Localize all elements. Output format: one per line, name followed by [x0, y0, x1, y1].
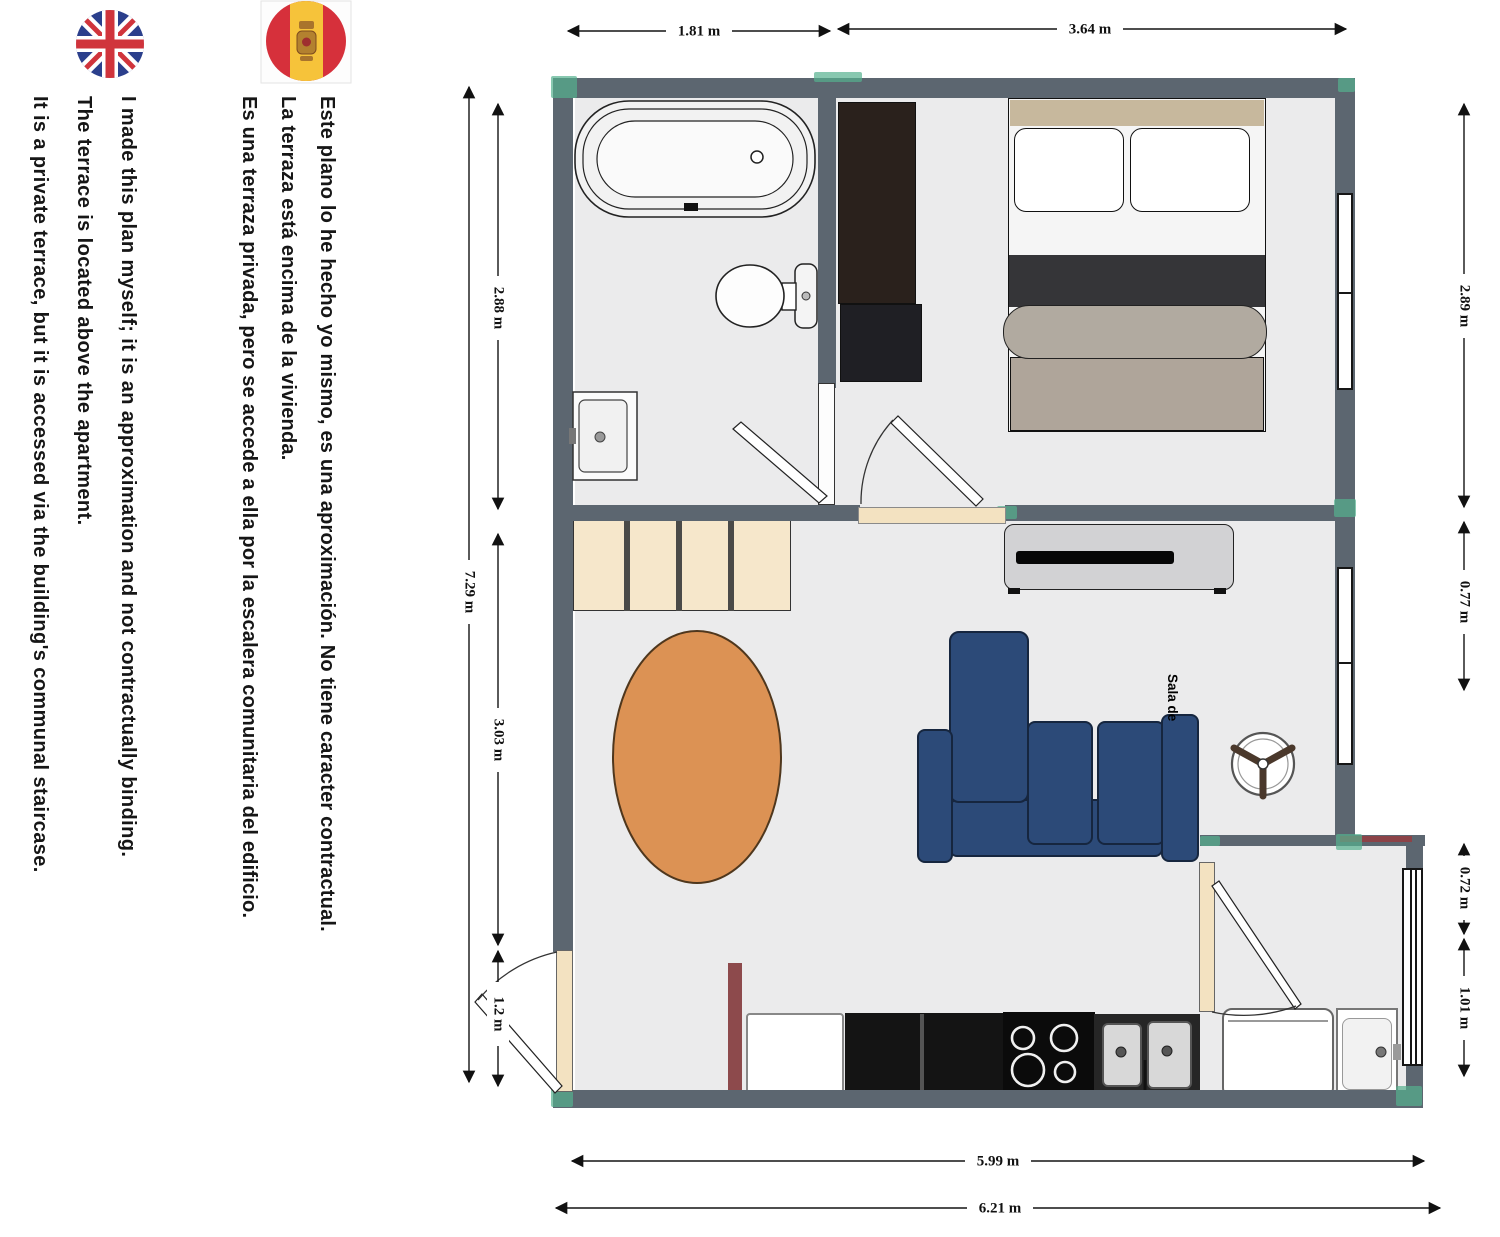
notes-english: I made this plan myself; it is an approx… [14, 96, 150, 1226]
teal-accent [1396, 1086, 1422, 1106]
pillow-right [1130, 128, 1250, 212]
stair-divider [676, 520, 682, 611]
dim-left-2: 3.03 m [491, 719, 507, 762]
spain-flag-icon [260, 0, 352, 84]
wall-top [553, 78, 1355, 98]
bedroom-door-threshold [858, 507, 1006, 524]
dim-top-2: 3.64 m [1069, 21, 1112, 37]
dim-left-1: 2.88 m [491, 287, 507, 330]
dim-right-4: 1.01 m [1457, 987, 1473, 1030]
annex-sink-basin [1342, 1018, 1392, 1090]
bed-bolster [1003, 305, 1267, 359]
dim-bottom-1: 5.99 m [977, 1153, 1020, 1169]
bed-blanket [1010, 357, 1264, 431]
dim-right-3: 0.72 m [1457, 867, 1473, 910]
wall-bottom [553, 1090, 1423, 1108]
kitchen-counter [845, 1013, 1003, 1096]
annex-window [1402, 868, 1423, 1066]
teal-accent [1338, 78, 1355, 92]
sofa-cushion [1027, 721, 1093, 845]
washing-machine-lid-line [1228, 1020, 1328, 1022]
floor-plan-page: I made this plan myself; it is an approx… [0, 0, 1500, 1237]
kitchen-appliance [746, 1013, 844, 1097]
stair-divider [728, 520, 734, 611]
tv-screen [1016, 551, 1174, 564]
dim-bottom-2: 6.21 m [979, 1200, 1022, 1216]
dim-left-3: 1.2 m [491, 997, 507, 1033]
bed-dark-blanket [1009, 255, 1265, 307]
stove [1003, 1012, 1095, 1097]
dim-top-1: 1.81 m [678, 23, 721, 39]
bedroom-window [1337, 193, 1353, 390]
note-es-2: La terraza está encima de la vivienda. [268, 96, 307, 1221]
teal-accent [1334, 499, 1356, 517]
annex-door-panel [1199, 862, 1215, 1012]
cabinet-foot [1214, 588, 1226, 594]
wall-bathroom-divider [818, 98, 836, 388]
counter-divider [920, 1014, 924, 1095]
wall-mid-left [553, 505, 860, 521]
uk-flag-icon [74, 5, 146, 79]
bathroom-door-panel [818, 383, 835, 505]
note-en-1: I made this plan myself; it is an approx… [106, 96, 150, 1226]
stair-divider [624, 520, 630, 611]
teal-accent [1336, 834, 1362, 850]
stairs [573, 520, 791, 611]
entrance-door-swing [475, 952, 562, 1093]
living-room-window [1337, 567, 1353, 765]
pillow-left [1014, 128, 1124, 212]
kitchen-sink-left [1102, 1023, 1142, 1087]
cabinet-foot [1008, 588, 1020, 594]
kitchen-pillar [728, 963, 742, 1091]
teal-accent [814, 72, 862, 82]
sofa-cushion [1097, 721, 1165, 845]
entrance-door-panel [556, 950, 573, 1092]
wardrobe [838, 102, 916, 304]
dim-right-1: 2.89 m [1457, 285, 1473, 328]
sofa-chaise [949, 631, 1029, 803]
teal-accent [551, 76, 577, 98]
note-es-3: Es una terraza privada, pero se accede a… [229, 96, 268, 1221]
dim-right-2: 0.77 m [1457, 581, 1473, 624]
sofa-armrest-right [1161, 714, 1199, 862]
dim-left-outer: 7.29 m [462, 571, 478, 614]
wall-mid-right [1005, 505, 1335, 521]
note-en-2: The terrace is located above the apartme… [62, 96, 106, 1226]
sofa-armrest-left [917, 729, 953, 863]
closet [840, 304, 922, 382]
bed-headboard [1010, 100, 1264, 126]
kitchen-sink-right [1147, 1021, 1192, 1089]
notes-spanish: Este plano lo he hecho yo mismo, es una … [224, 96, 346, 1221]
annex-sink-tap [1393, 1044, 1401, 1060]
note-en-3: It is a private terrace, but it is acces… [18, 96, 62, 1226]
teal-accent [1200, 836, 1220, 846]
note-es-1: Este plano lo he hecho yo mismo, es una … [307, 96, 346, 1221]
